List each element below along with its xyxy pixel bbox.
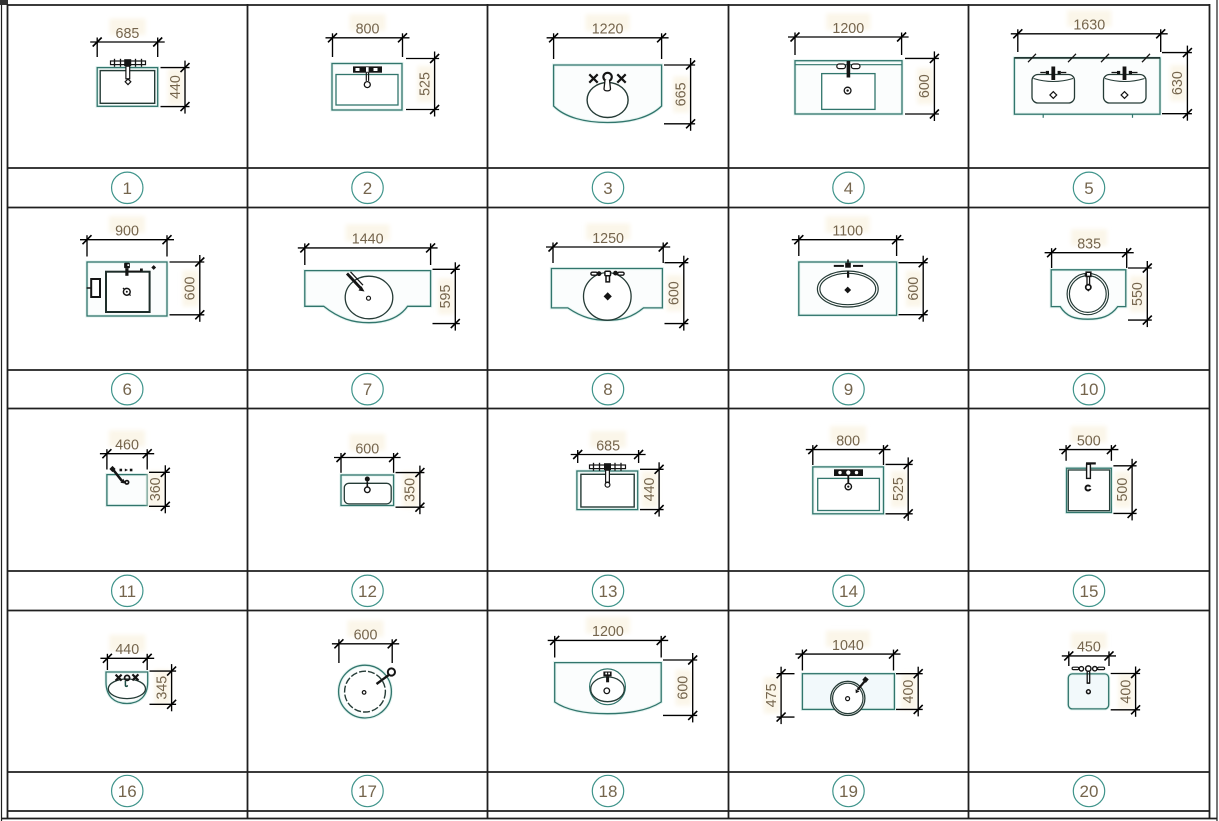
svg-text:13: 13 (599, 582, 618, 601)
svg-text:400: 400 (901, 680, 917, 704)
svg-text:600: 600 (183, 276, 199, 300)
svg-text:500: 500 (1115, 478, 1131, 502)
svg-text:630: 630 (1170, 71, 1186, 95)
svg-text:400: 400 (1118, 680, 1134, 704)
svg-text:4: 4 (844, 179, 853, 198)
svg-text:800: 800 (836, 433, 860, 449)
svg-text:5: 5 (1084, 179, 1093, 198)
svg-text:12: 12 (358, 582, 377, 601)
svg-text:1040: 1040 (832, 638, 864, 654)
svg-text:1250: 1250 (592, 231, 624, 247)
svg-text:360: 360 (148, 477, 164, 501)
svg-text:2: 2 (363, 179, 372, 198)
svg-text:11: 11 (118, 582, 136, 601)
svg-text:15: 15 (1080, 582, 1099, 601)
svg-text:1630: 1630 (1073, 18, 1105, 34)
svg-text:600: 600 (676, 676, 692, 700)
svg-text:17: 17 (358, 782, 377, 801)
svg-text:3: 3 (603, 179, 612, 198)
svg-text:600: 600 (667, 281, 683, 305)
svg-text:550: 550 (1130, 282, 1146, 306)
svg-text:1100: 1100 (832, 224, 863, 240)
svg-text:525: 525 (891, 477, 907, 501)
svg-text:450: 450 (1077, 640, 1101, 656)
svg-text:685: 685 (596, 438, 620, 454)
svg-text:900: 900 (115, 224, 139, 240)
svg-text:460: 460 (115, 438, 139, 454)
svg-text:665: 665 (673, 82, 689, 106)
svg-text:685: 685 (116, 26, 140, 42)
svg-text:440: 440 (642, 477, 658, 501)
svg-text:9: 9 (844, 380, 853, 399)
svg-text:8: 8 (603, 380, 612, 399)
svg-text:19: 19 (839, 782, 858, 801)
svg-text:14: 14 (839, 582, 858, 601)
svg-text:440: 440 (168, 75, 184, 99)
svg-text:18: 18 (599, 782, 618, 801)
svg-text:16: 16 (118, 782, 137, 801)
svg-text:835: 835 (1077, 237, 1101, 253)
svg-text:1: 1 (123, 179, 132, 198)
svg-text:475: 475 (764, 683, 780, 707)
svg-text:6: 6 (123, 380, 132, 399)
svg-text:600: 600 (355, 441, 379, 457)
svg-text:595: 595 (438, 284, 454, 308)
svg-text:7: 7 (363, 380, 372, 399)
svg-text:525: 525 (417, 72, 433, 96)
svg-text:10: 10 (1080, 380, 1099, 399)
svg-text:1200: 1200 (592, 624, 624, 640)
svg-text:20: 20 (1080, 782, 1099, 801)
svg-text:600: 600 (906, 277, 922, 301)
svg-text:1440: 1440 (352, 232, 384, 248)
svg-text:500: 500 (1077, 433, 1101, 449)
svg-text:345: 345 (154, 676, 170, 700)
svg-text:600: 600 (354, 628, 378, 644)
svg-text:600: 600 (917, 74, 933, 98)
svg-text:1220: 1220 (592, 22, 624, 38)
svg-text:440: 440 (115, 642, 139, 658)
svg-text:1200: 1200 (832, 21, 864, 37)
svg-text:800: 800 (356, 22, 380, 38)
svg-text:350: 350 (403, 478, 419, 502)
